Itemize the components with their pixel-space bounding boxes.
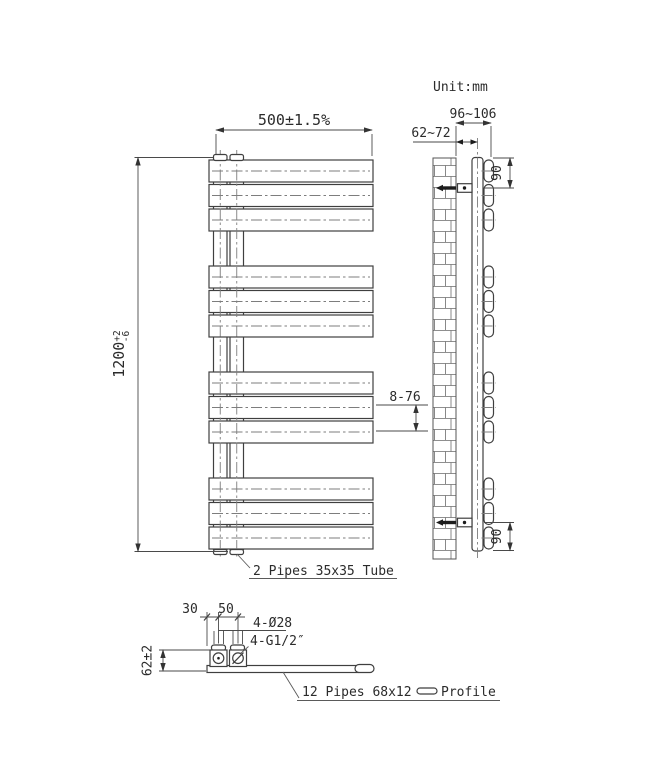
thread-label: 4-G1/2″ xyxy=(250,634,305,649)
front-view: 500±1.5% 1200+2-6 8-76 2 Pipes 35x35 Tub… xyxy=(110,111,428,579)
tube-label: 2 Pipes 35x35 Tube xyxy=(237,554,397,579)
panel-spacing-dimension: 8-76 xyxy=(376,390,428,431)
anchor-bolt-shaft xyxy=(441,186,456,189)
unit-label: Unit:mm xyxy=(433,80,488,95)
panel-bars xyxy=(209,160,373,549)
wall-to-front-label: 96~106 xyxy=(450,107,497,122)
thread-dimension: 4-G1/2″ xyxy=(241,634,305,654)
tube-spacing-label: 50 xyxy=(218,602,234,617)
top-bracket-label: 90 xyxy=(490,165,505,181)
width-dimension: 500±1.5% xyxy=(216,111,372,156)
tube-bottom-cap xyxy=(214,550,228,555)
bottom-view: 30 50 4-Ø28 4-G1/2″ 62±2 12 Pipes 68 xyxy=(141,602,501,701)
fitting-height-dimension: 62±2 xyxy=(141,645,211,676)
profile-label-prefix: 12 Pipes 68x12 xyxy=(302,685,412,700)
bottom-bracket-label: 90 xyxy=(490,529,505,545)
width-dim-label: 500±1.5% xyxy=(258,111,330,129)
tube-top-cap xyxy=(214,155,228,161)
wall-to-front-dimension: 96~106 xyxy=(450,107,497,157)
spacing-dim-label: 8-76 xyxy=(389,390,420,405)
profile-label: 12 Pipes 68x12 Profile xyxy=(283,672,500,701)
holes-label: 4-Ø28 xyxy=(253,616,292,631)
bracket-screw-dot xyxy=(463,186,466,189)
tube-label-text: 2 Pipes 35x35 Tube xyxy=(253,564,394,579)
profile-shape-icon xyxy=(417,688,437,694)
fitting-height-label: 62±2 xyxy=(141,645,156,676)
brick-wall xyxy=(433,158,456,559)
tube-bottom-cap xyxy=(230,550,244,555)
radiator-technical-drawing: 500±1.5% 1200+2-6 8-76 2 Pipes 35x35 Tub… xyxy=(0,0,645,774)
wall-to-tube-label: 62~72 xyxy=(411,126,450,141)
side-view: Unit:mm 96~106 62~72 90 xyxy=(411,80,514,559)
technical-drawing-page: 500±1.5% 1200+2-6 8-76 2 Pipes 35x35 Tub… xyxy=(0,0,645,774)
profile-label-suffix: Profile xyxy=(441,685,496,700)
height-dim-label: 1200+2-6 xyxy=(110,330,132,378)
left-pipe-fitting xyxy=(210,645,227,667)
end-to-tube-label: 30 xyxy=(182,602,198,617)
anchor-bolt-shaft xyxy=(441,521,456,524)
bracket-screw-dot xyxy=(463,521,466,524)
panel-edge-ovals xyxy=(482,160,497,549)
right-pipe-fitting xyxy=(230,645,247,667)
wall-to-tube-dimension: 62~72 xyxy=(411,126,477,145)
tube-top-cap xyxy=(230,155,244,161)
